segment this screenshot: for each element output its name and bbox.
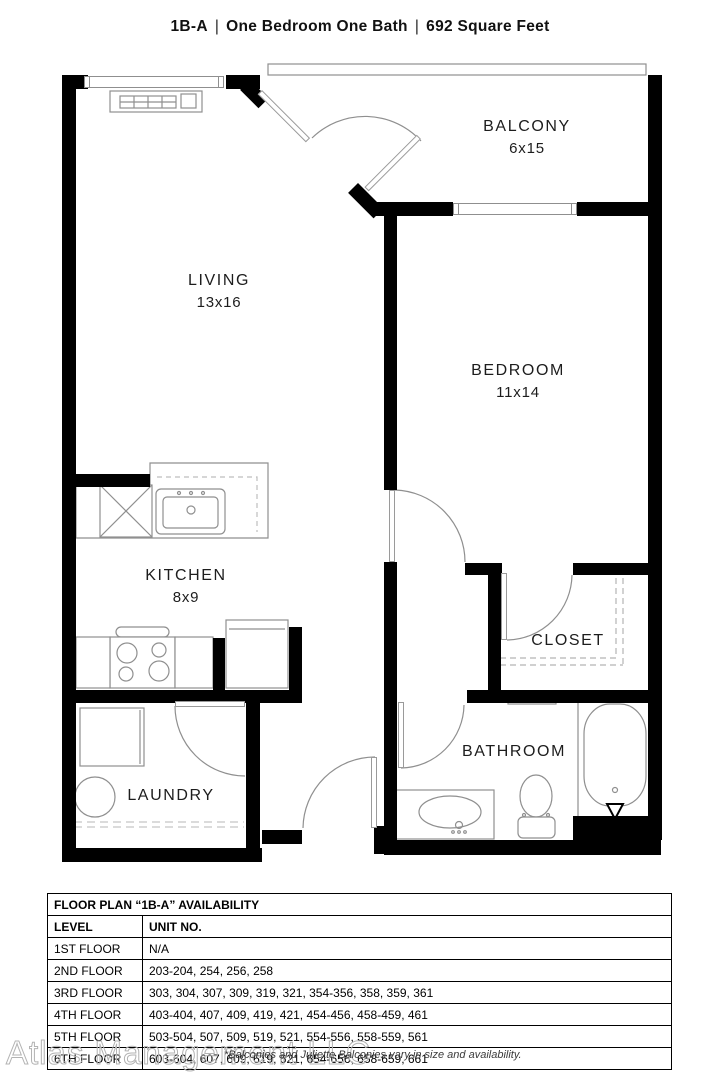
table-row: 2ND FLOOR 203-204, 254, 256, 258: [48, 960, 672, 982]
room-dims: 11x14: [448, 384, 588, 401]
balcony-door-arc: [312, 116, 421, 141]
level-cell: 3RD FLOOR: [48, 982, 143, 1004]
room-name: LIVING: [149, 272, 289, 290]
bedroom-window: [453, 203, 577, 215]
bathroom-vanity: [394, 790, 494, 839]
wall-tub-step: [573, 816, 661, 842]
room-name: LAUNDRY: [101, 787, 241, 805]
bedroom-door-leaf: [389, 490, 395, 562]
balcony-footnote: *Balconies and Juliette Balconies vary i…: [224, 1049, 522, 1061]
counter-right-of-stove: [175, 637, 213, 688]
closet-door-leaf: [501, 573, 507, 640]
room-label-laundry: LAUNDRY: [101, 787, 241, 805]
table-row: 1ST FLOOR N/A: [48, 938, 672, 960]
col-header-level: LEVEL: [48, 916, 143, 938]
col-header-unit: UNIT NO.: [143, 916, 672, 938]
refrigerator: [226, 620, 288, 688]
heater-unit: [110, 91, 202, 112]
wall-bottom-left: [62, 848, 262, 862]
wall-laundry-right: [246, 703, 260, 850]
counter-left-of-stove: [76, 637, 110, 688]
window-cap: [571, 203, 577, 215]
laundry-door-leaf: [175, 701, 245, 707]
table-title: FLOOR PLAN “1B-A” AVAILABILITY: [48, 894, 672, 916]
wall-living-bedroom-lower: [384, 562, 397, 842]
bathtub: [578, 698, 651, 819]
window-cap: [84, 76, 90, 88]
units-cell: 403-404, 407, 409, 419, 421, 454-456, 45…: [143, 1004, 672, 1026]
table-title-row: FLOOR PLAN “1B-A” AVAILABILITY: [48, 894, 672, 916]
entry-door-arc: [303, 757, 375, 828]
room-name: CLOSET: [498, 632, 638, 650]
stove: [110, 627, 175, 688]
units-cell: N/A: [143, 938, 672, 960]
wall-right: [648, 75, 662, 840]
entry-door-leaf: [371, 757, 377, 828]
balcony-railing: [268, 64, 646, 75]
closet-shelf-dashed: [500, 578, 623, 665]
toilet: [518, 775, 555, 838]
level-cell: 1ST FLOOR: [48, 938, 143, 960]
room-dims: 13x16: [149, 294, 289, 311]
bedroom-door-arc: [395, 490, 465, 562]
fixtures-layer: [0, 0, 720, 880]
room-dims: 8x9: [116, 589, 256, 606]
floor-plan-drawing: LIVING 13x16 BALCONY 6x15 BEDROOM 11x14 …: [0, 0, 720, 880]
room-name: KITCHEN: [116, 567, 256, 585]
room-label-bedroom: BEDROOM 11x14: [448, 362, 588, 401]
dishwasher: [100, 485, 152, 537]
room-label-bathroom: BATHROOM: [444, 743, 584, 761]
wall-fridge: [289, 627, 302, 693]
window-cap: [218, 76, 224, 88]
closet-door-arc: [507, 575, 572, 640]
window-cap: [453, 203, 459, 215]
room-name: BATHROOM: [444, 743, 584, 761]
wall-left: [62, 75, 76, 862]
room-label-kitchen: KITCHEN 8x9: [116, 567, 256, 606]
wall-living-bedroom-upper: [384, 215, 397, 490]
living-window: [84, 76, 224, 88]
units-cell: 303, 304, 307, 309, 319, 321, 354-356, 3…: [143, 982, 672, 1004]
level-cell: 2ND FLOOR: [48, 960, 143, 982]
room-name: BALCONY: [457, 118, 597, 136]
wall-kitchen-stub: [62, 474, 150, 487]
room-label-balcony: BALCONY 6x15: [457, 118, 597, 157]
wall-bedroom-top-b: [577, 202, 648, 216]
room-name: BEDROOM: [448, 362, 588, 380]
laundry-door-arc: [175, 706, 245, 776]
washer-dryer: [80, 708, 144, 766]
kitchen-sink: [156, 489, 225, 534]
table-row: 3RD FLOOR 303, 304, 307, 309, 319, 321, …: [48, 982, 672, 1004]
wall-stove-stub: [213, 638, 225, 690]
floor-plan-page: 1B-A|One Bedroom One Bath|692 Square Fee…: [0, 0, 720, 1080]
laundry-dashed-line: [74, 822, 244, 827]
table-header-row: LEVEL UNIT NO.: [48, 916, 672, 938]
wall-bedroom-bottom-b: [573, 563, 650, 575]
wall-entry-step: [262, 830, 302, 844]
table-row: 4TH FLOOR 403-404, 407, 409, 419, 421, 4…: [48, 1004, 672, 1026]
level-cell: 4TH FLOOR: [48, 1004, 143, 1026]
bathroom-door-leaf: [398, 702, 404, 768]
units-cell: 203-204, 254, 256, 258: [143, 960, 672, 982]
room-dims: 6x15: [457, 140, 597, 157]
wall-bedroom-top-a: [374, 202, 453, 216]
room-label-living: LIVING 13x16: [149, 272, 289, 311]
room-label-closet: CLOSET: [498, 632, 638, 650]
wall-hall-closet-divider: [488, 563, 501, 697]
wall-bathroom-top: [467, 690, 648, 703]
wall-bathroom-bottom: [384, 840, 661, 855]
